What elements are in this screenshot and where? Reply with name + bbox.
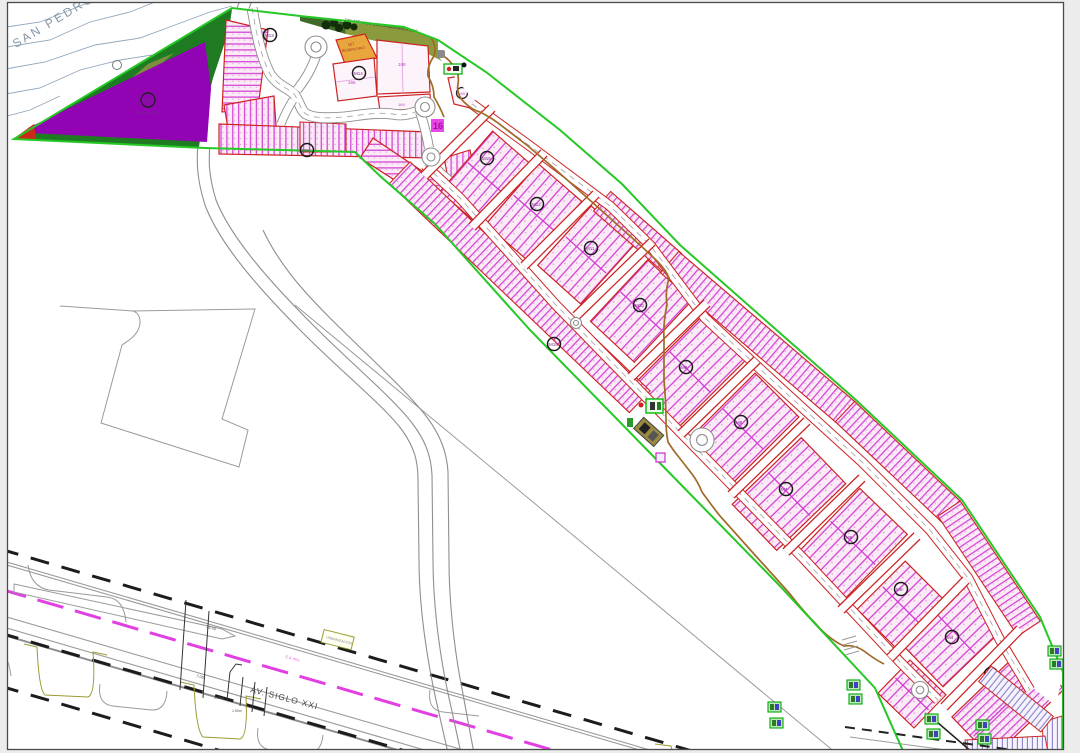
svg-text:1.50m: 1.50m: [214, 696, 224, 700]
svg-text:M12: M12: [532, 202, 541, 207]
svg-text:M4: M4: [947, 635, 954, 640]
svg-text:M17: M17: [143, 99, 153, 105]
svg-text:169: 169: [398, 102, 405, 107]
svg-text:M5: M5: [896, 587, 903, 592]
svg-text:166: 166: [348, 80, 356, 85]
svg-text:M6: M6: [846, 535, 853, 540]
svg-text:M18: M18: [549, 342, 558, 347]
svg-text:area verde: area verde: [138, 110, 158, 115]
svg-text:M16: M16: [302, 148, 311, 153]
svg-text:168: 168: [398, 62, 406, 67]
svg-text:M15: M15: [482, 156, 491, 161]
svg-text:1.50m: 1.50m: [232, 709, 242, 713]
svg-text:M13: M13: [265, 33, 274, 38]
svg-text:M8: M8: [736, 420, 743, 425]
svg-text:M14: M14: [354, 71, 363, 76]
svg-text:M10: M10: [635, 303, 644, 308]
svg-text:M9: M9: [681, 365, 688, 370]
svg-text:M7: M7: [781, 487, 788, 492]
svg-text:M11: M11: [586, 246, 595, 251]
svg-text:16: 16: [433, 121, 443, 131]
